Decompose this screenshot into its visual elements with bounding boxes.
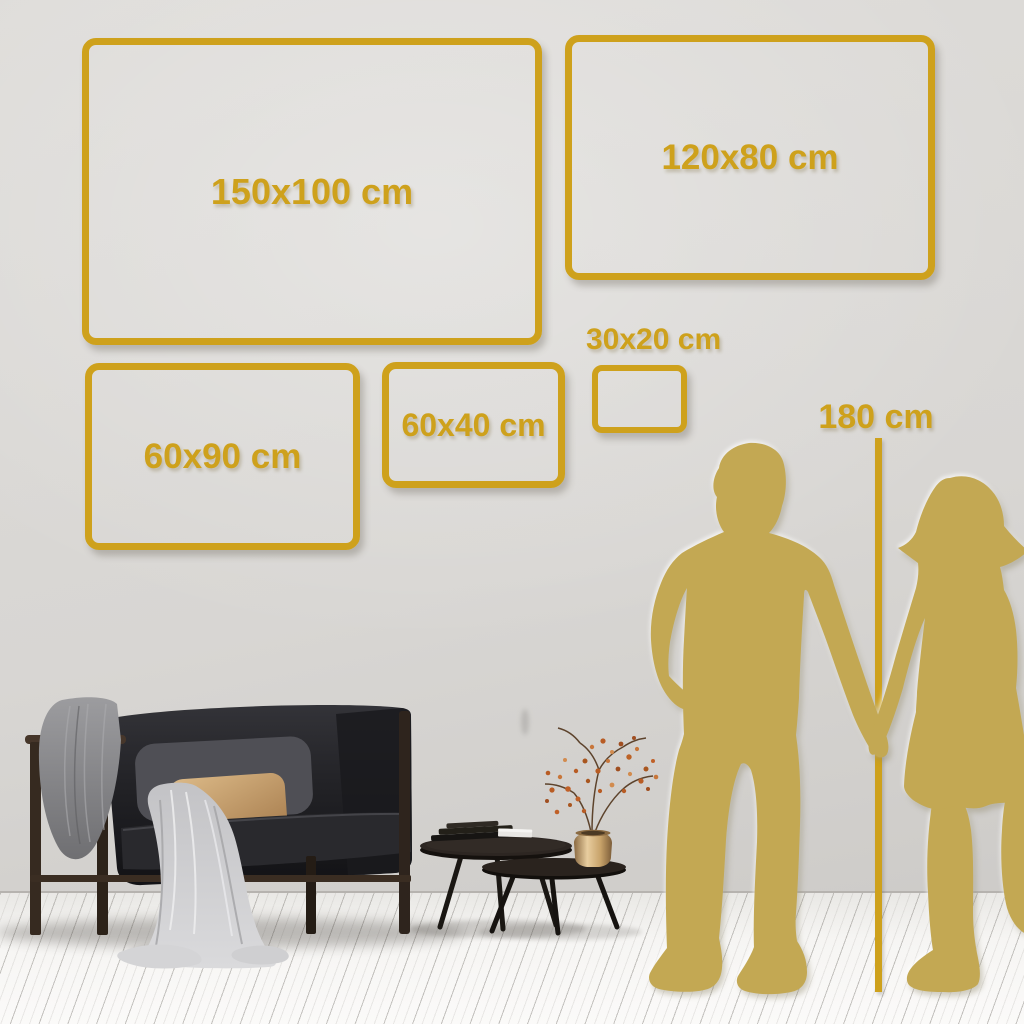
woman-silhouette bbox=[869, 476, 1024, 809]
couple-silhouettes bbox=[0, 0, 1024, 1024]
woman-edge-leg bbox=[1001, 792, 1024, 934]
size-guide-scene: 150x100 cm 120x80 cm 60x90 cm 60x40 cm 3… bbox=[0, 0, 1024, 1024]
woman-leg bbox=[907, 802, 980, 992]
man-silhouette bbox=[649, 443, 888, 994]
